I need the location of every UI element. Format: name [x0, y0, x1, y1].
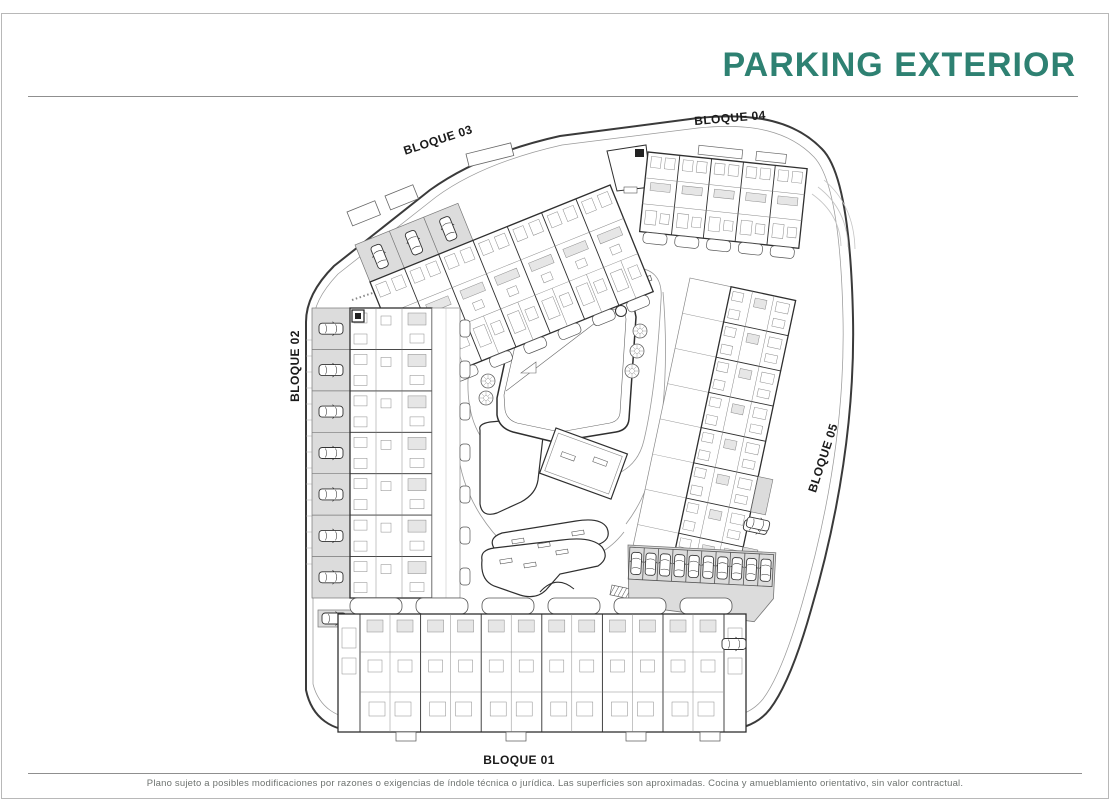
bloque-01-building — [338, 598, 746, 741]
footer-rule — [28, 773, 1082, 774]
bloque-02-building — [312, 308, 470, 598]
label-bloque-02: BLOQUE 02 — [288, 330, 302, 402]
label-bloque-01: BLOQUE 01 — [483, 753, 555, 767]
site-plan — [0, 0, 1110, 800]
disclaimer-text: Plano sujeto a posibles modificaciones p… — [0, 778, 1110, 789]
brochure-page: PARKING EXTERIOR — [0, 0, 1110, 800]
parked-car — [722, 637, 746, 651]
